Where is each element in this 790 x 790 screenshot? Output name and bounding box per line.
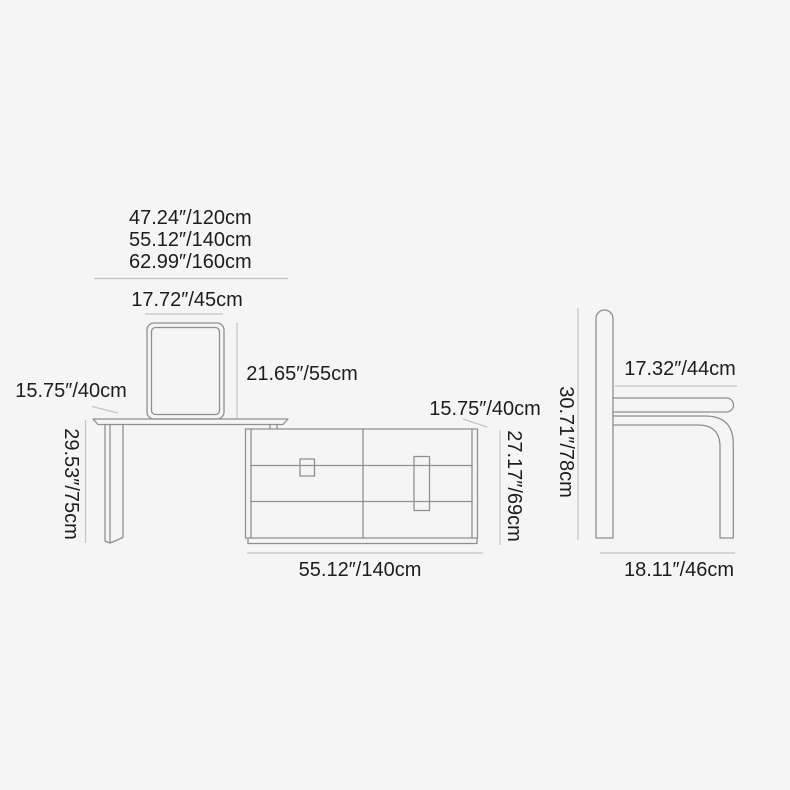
chair-height-label: 30.71″/78cm <box>556 386 576 498</box>
desk-depth-label: 15.75″/40cm <box>15 381 127 401</box>
cabinet-depth-label: 15.75″/40cm <box>429 399 541 419</box>
desk-leg <box>105 425 123 544</box>
desk-width-options: 47.24″/120cm 55.12″/140cm 62.99″/160cm <box>129 207 252 273</box>
drawer-handle-right <box>414 457 430 511</box>
mirror-width-label: 17.72″/45cm <box>131 290 243 310</box>
cabinet <box>246 429 478 544</box>
chair-back-leg <box>596 310 613 538</box>
mirror-outer-frame <box>147 323 224 419</box>
mirror-inner-frame <box>152 328 220 415</box>
furniture-dimension-diagram: 47.24″/120cm 55.12″/140cm 62.99″/160cm 1… <box>0 0 790 790</box>
desk-height-label: 29.53″/75cm <box>61 428 81 540</box>
mirror-height-label: 21.65″/55cm <box>246 364 358 384</box>
chair-seat-width-label: 17.32″/44cm <box>624 359 736 379</box>
drawer-divider-lines <box>251 466 472 502</box>
mirror <box>147 323 224 419</box>
desk <box>93 419 288 543</box>
leader-cabinet-depth <box>463 419 487 427</box>
leader-desk-depth <box>92 407 118 414</box>
cabinet-width-label: 55.12″/140cm <box>299 560 422 580</box>
cabinet-vertical-panels <box>251 429 472 538</box>
chair <box>596 310 734 538</box>
cabinet-body <box>246 429 478 538</box>
chair-base-width-label: 18.11″/46cm <box>624 560 734 580</box>
desk-width-option-140: 55.12″/140cm <box>129 229 252 251</box>
chair-front-leg <box>613 416 733 538</box>
desk-width-option-160: 62.99″/160cm <box>129 251 252 273</box>
chair-seat <box>613 398 734 412</box>
cabinet-base <box>248 538 477 544</box>
desk-width-option-120: 47.24″/120cm <box>129 207 252 229</box>
drawer-handle-left <box>300 459 315 476</box>
desk-top <box>93 419 288 425</box>
cabinet-height-label: 27.17″/69cm <box>504 430 524 542</box>
desk-support-tabs <box>270 425 277 430</box>
